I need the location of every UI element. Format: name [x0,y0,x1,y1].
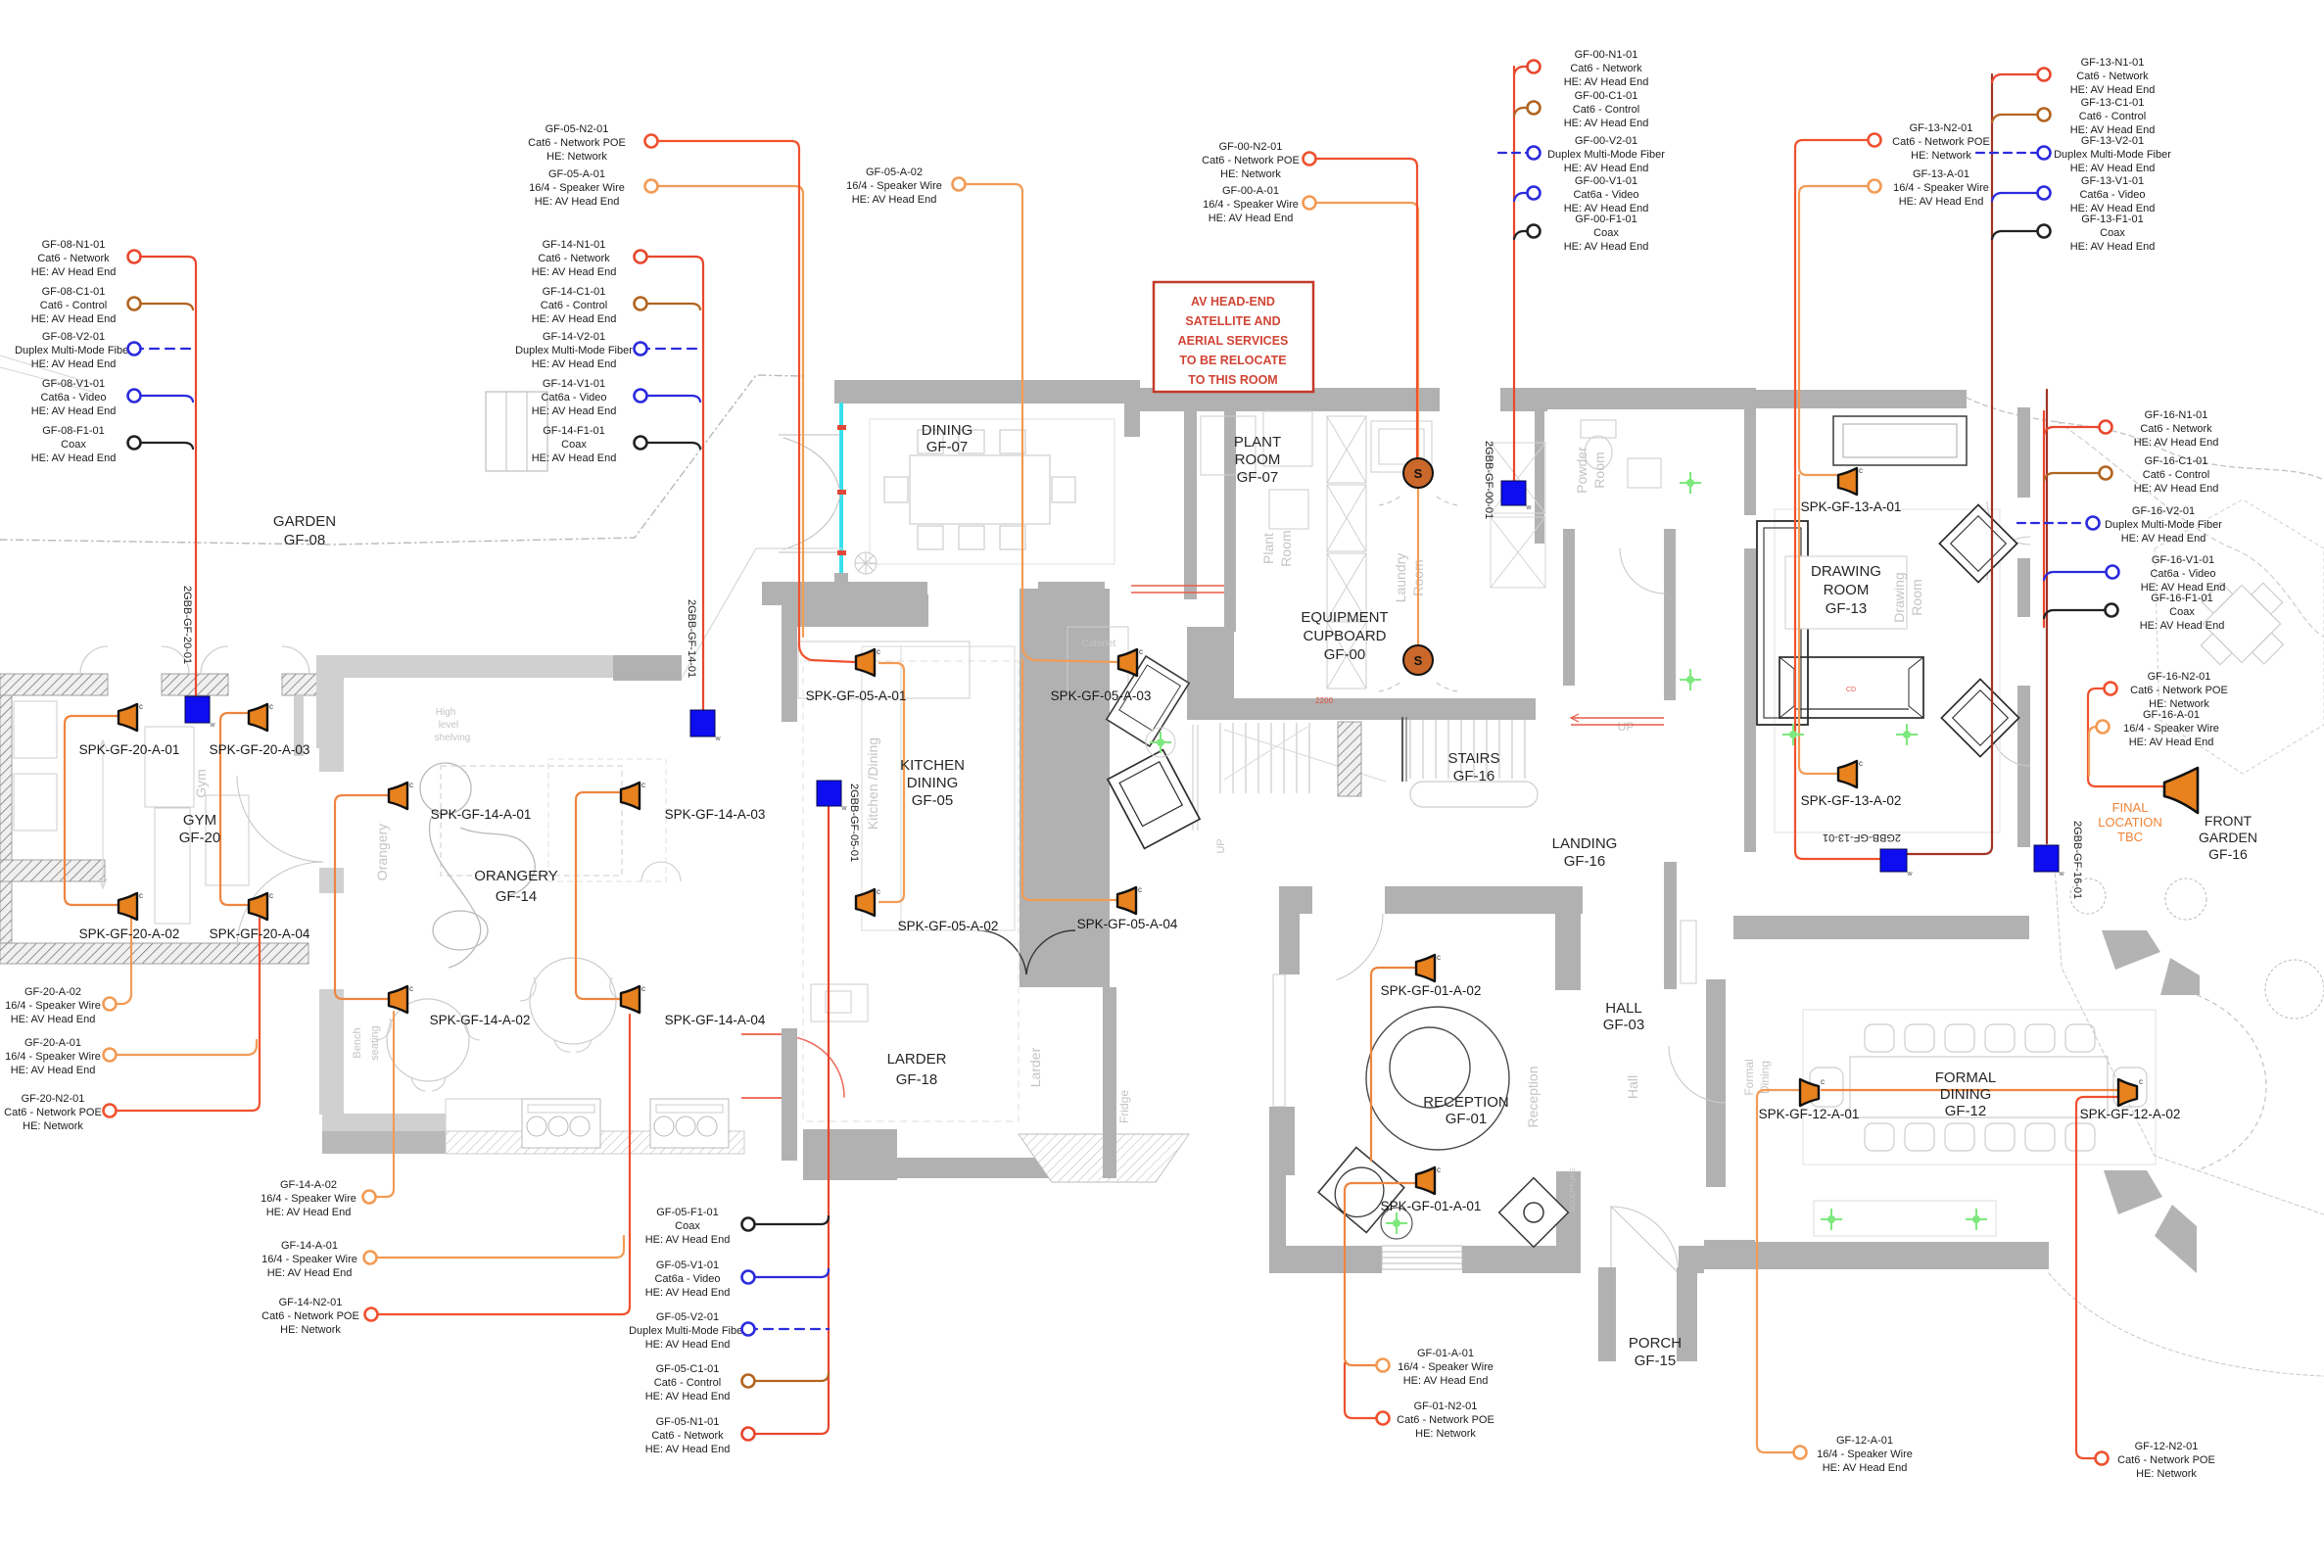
svg-text:Duplex Multi-Mode Fiber: Duplex Multi-Mode Fiber [1547,149,1665,161]
svg-text:Cabinet: Cabinet [1082,639,1116,649]
svg-text:Cat6 - Network: Cat6 - Network [37,253,110,264]
svg-text:GF-08-V2-01: GF-08-V2-01 [42,331,105,343]
svg-text:Cat6 - Control: Cat6 - Control [40,300,107,311]
svg-text:HE: AV Head End: HE: AV Head End [267,1267,353,1279]
svg-text:Cat6a - Video: Cat6a - Video [2150,568,2215,580]
svg-text:GF-16-V1-01: GF-16-V1-01 [2152,554,2214,566]
svg-text:SPK-GF-14-A-01: SPK-GF-14-A-01 [431,807,532,822]
svg-text:HE: AV Head End: HE: AV Head End [645,1287,731,1299]
svg-text:GF-20: GF-20 [179,830,221,846]
svg-text:Duplex Multi-Mode Fiber: Duplex Multi-Mode Fiber [2054,149,2171,161]
svg-text:HE: AV Head End: HE: AV Head End [2070,84,2156,96]
svg-text:HE: AV Head End: HE: AV Head End [1564,76,1649,88]
svg-text:HE: AV Head End: HE: AV Head End [31,313,117,325]
svg-text:HE: AV Head End: HE: AV Head End [2070,241,2156,253]
svg-text:GF-00-F1-01: GF-00-F1-01 [1575,214,1637,225]
svg-text:SPK-GF-14-A-03: SPK-GF-14-A-03 [665,807,766,822]
svg-text:Coax: Coax [675,1220,700,1232]
svg-text:GF-14-C1-01: GF-14-C1-01 [543,286,606,298]
svg-text:w: w [209,722,215,729]
svg-text:Cat6 - Network: Cat6 - Network [538,253,610,264]
svg-text:Cat6 - Network POE: Cat6 - Network POE [2130,685,2228,696]
svg-text:HE: AV Head End: HE: AV Head End [2134,483,2219,495]
svg-text:Cat6 - Network POE: Cat6 - Network POE [261,1310,359,1322]
svg-text:GF-00-N1-01: GF-00-N1-01 [1575,49,1638,61]
svg-text:level: level [439,720,459,731]
svg-text:Room: Room [1591,451,1607,488]
svg-text:HE: AV Head End: HE: AV Head End [31,266,117,278]
svg-text:Cat6 - Network POE: Cat6 - Network POE [528,137,626,149]
svg-text:HE: AV Head End: HE: AV Head End [645,1391,731,1402]
svg-text:SATELLITE AND: SATELLITE AND [1185,314,1280,328]
svg-text:Coax: Coax [2100,227,2125,239]
svg-text:FORMAL: FORMAL [1935,1069,1997,1086]
svg-text:HE: Network: HE: Network [1911,150,1971,162]
svg-text:GF-14-A-02: GF-14-A-02 [280,1179,337,1191]
svg-text:SPK-GF-20-A-03: SPK-GF-20-A-03 [210,742,310,757]
svg-text:PORCH: PORCH [1629,1335,1682,1352]
svg-text:FRONT: FRONT [2205,813,2253,829]
svg-text:GF-05-N1-01: GF-05-N1-01 [656,1416,720,1428]
svg-text:SPK-GF-05-A-03: SPK-GF-05-A-03 [1051,689,1152,703]
svg-text:w: w [2058,871,2064,878]
svg-text:Bench: Bench [352,1027,363,1058]
svg-text:16/4 - Speaker Wire: 16/4 - Speaker Wire [5,1000,101,1012]
svg-text:SPK-GF-13-A-01: SPK-GF-13-A-01 [1801,499,1902,514]
svg-text:GF-05-C1-01: GF-05-C1-01 [656,1363,720,1375]
svg-text:CUPBOARD: CUPBOARD [1303,628,1386,644]
svg-text:Cat6 - Network: Cat6 - Network [651,1430,724,1442]
svg-text:Cat6 - Control: Cat6 - Control [541,300,607,311]
svg-text:GF-07: GF-07 [926,439,969,455]
svg-text:c: c [139,702,143,711]
svg-text:GF-14: GF-14 [496,888,538,905]
svg-text:HE: AV Head End: HE: AV Head End [1209,213,1294,224]
svg-text:c: c [409,984,413,993]
svg-text:DINING: DINING [1940,1086,1992,1103]
svg-text:GF-13-C1-01: GF-13-C1-01 [2081,97,2145,109]
svg-text:GF-00-C1-01: GF-00-C1-01 [1575,90,1638,102]
svg-text:GF-00-V2-01: GF-00-V2-01 [1575,135,1637,147]
svg-text:GF-05-V1-01: GF-05-V1-01 [656,1259,719,1271]
svg-text:Cat6a - Video: Cat6a - Video [654,1273,720,1285]
svg-text:c: c [1821,1077,1825,1086]
svg-text:SPK-GF-12-A-02: SPK-GF-12-A-02 [2080,1107,2181,1121]
svg-text:HE: AV Head End: HE: AV Head End [2070,163,2156,174]
svg-text:RECEPTION: RECEPTION [1423,1094,1509,1111]
svg-text:GF-01-N2-01: GF-01-N2-01 [1414,1401,1478,1412]
svg-text:GF-13-V1-01: GF-13-V1-01 [2081,175,2144,187]
svg-text:c: c [409,781,413,789]
svg-text:Laundry: Laundry [1393,553,1408,603]
svg-text:c: c [1859,759,1863,768]
svg-text:DINING: DINING [907,775,959,791]
svg-text:HE: AV Head End: HE: AV Head End [1564,241,1649,253]
svg-text:16/4 - Speaker Wire: 16/4 - Speaker Wire [1893,182,1989,194]
svg-text:16/4 - Speaker Wire: 16/4 - Speaker Wire [261,1193,356,1205]
svg-text:GF-14-V1-01: GF-14-V1-01 [543,378,605,390]
svg-text:GF-05-F1-01: GF-05-F1-01 [656,1207,719,1218]
svg-text:Room: Room [1909,579,1924,615]
svg-text:2GBB-GF-05-01: 2GBB-GF-05-01 [848,784,860,862]
svg-text:GF-16-N2-01: GF-16-N2-01 [2148,671,2211,683]
svg-text:GF-00: GF-00 [1324,646,1366,663]
svg-text:Cat6 - Network: Cat6 - Network [2076,71,2149,82]
svg-text:GF-13-F1-01: GF-13-F1-01 [2081,214,2144,225]
svg-text:SCULPTURE: SCULPTURE [1568,1167,1577,1212]
svg-text:GF-08-C1-01: GF-08-C1-01 [42,286,106,298]
svg-text:Coax: Coax [561,439,587,451]
svg-text:GF-16-F1-01: GF-16-F1-01 [2151,593,2213,604]
svg-text:S: S [1414,466,1423,481]
svg-text:HE: Network: HE: Network [1415,1428,1476,1440]
svg-text:GF-20-N2-01: GF-20-N2-01 [22,1093,85,1105]
svg-text:Larder: Larder [1027,1047,1043,1087]
svg-text:GF-14-F1-01: GF-14-F1-01 [543,425,605,437]
svg-text:Duplex Multi-Mode Fiber: Duplex Multi-Mode Fiber [515,345,633,356]
svg-text:c: c [269,891,273,900]
svg-text:HE: AV Head End: HE: AV Head End [532,405,617,417]
svg-text:KITCHEN: KITCHEN [900,757,965,774]
svg-text:TBC: TBC [2117,830,2143,844]
svg-text:GARDEN: GARDEN [273,513,336,530]
svg-text:HE: AV Head End: HE: AV Head End [532,266,617,278]
svg-text:Duplex Multi-Mode Fiber: Duplex Multi-Mode Fiber [2105,519,2222,531]
svg-text:c: c [269,702,273,711]
svg-text:GF-16: GF-16 [1453,768,1495,784]
svg-text:GF-12-N2-01: GF-12-N2-01 [2135,1441,2199,1452]
svg-text:GF-07: GF-07 [1237,469,1279,486]
svg-text:Cat6a - Video: Cat6a - Video [40,392,106,404]
svg-text:HE: AV Head End: HE: AV Head End [532,313,617,325]
svg-text:c: c [2139,1077,2143,1086]
svg-text:GF-12: GF-12 [1945,1103,1987,1119]
svg-text:HE: AV Head End: HE: AV Head End [645,1234,731,1246]
svg-text:Coax: Coax [61,439,86,451]
svg-text:HE: AV Head End: HE: AV Head End [2121,533,2206,545]
svg-text:Reception: Reception [1525,1066,1541,1127]
svg-text:HE: AV Head End: HE: AV Head End [2129,736,2214,748]
svg-text:GARDEN: GARDEN [2199,830,2257,845]
svg-text:GF-05-A-02: GF-05-A-02 [866,166,923,178]
svg-text:SPK-GF-01-A-02: SPK-GF-01-A-02 [1381,983,1482,998]
svg-text:FINAL: FINAL [2112,800,2149,815]
svg-text:Duplex Multi-Mode Fiber: Duplex Multi-Mode Fiber [15,345,132,356]
svg-text:TO THIS ROOM: TO THIS ROOM [1188,373,1277,387]
svg-text:HE: Network: HE: Network [546,151,607,163]
svg-text:GF-08-N1-01: GF-08-N1-01 [42,239,106,251]
svg-text:GF-15: GF-15 [1635,1353,1677,1369]
svg-text:GF-16-N1-01: GF-16-N1-01 [2145,409,2208,421]
svg-text:GF-00-N2-01: GF-00-N2-01 [1219,141,1283,153]
svg-text:GF-16: GF-16 [1564,853,1606,870]
svg-text:HE: AV Head End: HE: AV Head End [11,1014,96,1025]
svg-text:GF-13: GF-13 [1826,600,1868,617]
svg-text:CD: CD [1846,687,1856,693]
svg-text:Cat6 - Network POE: Cat6 - Network POE [1892,136,1990,148]
svg-text:Cat6a - Video: Cat6a - Video [1573,189,1638,201]
svg-text:EQUIPMENT: EQUIPMENT [1301,609,1388,626]
svg-text:GF-16-C1-01: GF-16-C1-01 [2145,455,2208,467]
svg-text:GF-03: GF-03 [1603,1017,1645,1033]
svg-text:HE: AV Head End: HE: AV Head End [1564,163,1649,174]
svg-text:2GBB-GF-16-01: 2GBB-GF-16-01 [2071,821,2083,899]
svg-text:HE: AV Head End: HE: AV Head End [31,358,117,370]
svg-text:HE: AV Head End: HE: AV Head End [852,194,937,206]
svg-text:HE: Network: HE: Network [280,1324,341,1336]
svg-text:seating: seating [369,1025,381,1060]
svg-text:LANDING: LANDING [1552,835,1618,852]
svg-text:GF-05-N2-01: GF-05-N2-01 [545,123,609,135]
svg-text:SPK-GF-05-A-04: SPK-GF-05-A-04 [1077,917,1178,931]
svg-text:c: c [1859,466,1863,475]
svg-text:UP: UP [1215,838,1227,853]
svg-text:c: c [877,647,880,656]
svg-text:HE: AV Head End: HE: AV Head End [1823,1462,1908,1474]
svg-text:S: S [1414,653,1423,668]
svg-text:LOCATION: LOCATION [2098,815,2162,830]
svg-text:16/4 - Speaker Wire: 16/4 - Speaker Wire [5,1051,101,1063]
svg-text:Cat6 - Control: Cat6 - Control [654,1377,721,1389]
svg-text:HE: AV Head End: HE: AV Head End [645,1339,731,1351]
svg-text:GF-01: GF-01 [1446,1111,1488,1127]
svg-text:Cat6 - Network POE: Cat6 - Network POE [1202,155,1300,166]
svg-text:Cat6 - Control: Cat6 - Control [1573,104,1639,116]
svg-text:GF-14-N1-01: GF-14-N1-01 [543,239,606,251]
svg-text:GF-16-V2-01: GF-16-V2-01 [2132,505,2195,517]
svg-text:TO BE RELOCATE: TO BE RELOCATE [1179,354,1286,367]
svg-text:DINING: DINING [922,422,973,439]
svg-text:2GBB-GF-14-01: 2GBB-GF-14-01 [686,599,697,678]
svg-text:GF-14-A-01: GF-14-A-01 [281,1240,338,1252]
svg-text:Cat6 - Network: Cat6 - Network [2140,423,2212,435]
svg-text:SPK-GF-13-A-02: SPK-GF-13-A-02 [1801,793,1902,808]
svg-text:GF-05-V2-01: GF-05-V2-01 [656,1311,719,1323]
svg-text:STAIRS: STAIRS [1447,750,1499,767]
svg-text:SPK-GF-05-A-01: SPK-GF-05-A-01 [806,689,907,703]
svg-text:c: c [1437,953,1441,962]
svg-text:HE: AV Head End: HE: AV Head End [1564,118,1649,129]
svg-text:AERIAL SERVICES: AERIAL SERVICES [1178,334,1289,348]
svg-text:HE: AV Head End: HE: AV Head End [535,196,620,208]
svg-text:HE: AV Head End: HE: AV Head End [532,358,617,370]
svg-text:Room: Room [1278,530,1294,566]
svg-text:HE: AV Head End: HE: AV Head End [266,1207,352,1218]
svg-text:Cat6 - Control: Cat6 - Control [2143,469,2209,481]
svg-text:HE: AV Head End: HE: AV Head End [31,405,117,417]
svg-text:GF-16: GF-16 [2208,846,2248,862]
svg-text:Duplex Multi-Mode Fiber: Duplex Multi-Mode Fiber [629,1325,746,1337]
svg-text:LARDER: LARDER [887,1051,947,1068]
svg-text:HE: AV Head End: HE: AV Head End [2140,620,2225,632]
svg-text:High: High [436,707,456,718]
svg-text:w: w [840,805,847,812]
svg-text:Coax: Coax [2169,606,2195,618]
svg-text:GF-12-A-01: GF-12-A-01 [1836,1435,1893,1447]
svg-text:2GBB-GF-00-01: 2GBB-GF-00-01 [1483,441,1494,519]
svg-text:c: c [641,781,645,789]
svg-text:c: c [1139,647,1143,656]
svg-text:Coax: Coax [1593,227,1619,239]
svg-text:Gym: Gym [193,769,209,798]
svg-text:HE: AV Head End: HE: AV Head End [31,452,117,464]
svg-text:PLANT: PLANT [1234,434,1281,451]
svg-text:w: w [1525,504,1532,511]
svg-text:16/4 - Speaker Wire: 16/4 - Speaker Wire [2123,723,2219,735]
svg-text:GF-13-N2-01: GF-13-N2-01 [1910,122,1973,134]
svg-text:GF-16-A-01: GF-16-A-01 [2143,709,2200,721]
svg-text:Formal: Formal [1742,1059,1756,1095]
svg-text:shelving: shelving [435,733,471,743]
svg-text:Orangery: Orangery [374,824,390,880]
svg-text:UP: UP [1618,720,1635,734]
svg-text:GF-08-F1-01: GF-08-F1-01 [42,425,105,437]
svg-text:HE: Network: HE: Network [23,1120,83,1132]
svg-text:HALL: HALL [1605,1000,1642,1017]
svg-text:SPK-GF-05-A-02: SPK-GF-05-A-02 [898,919,999,933]
svg-text:GF-13-N1-01: GF-13-N1-01 [2081,57,2145,69]
svg-text:HE: AV Head End: HE: AV Head End [11,1065,96,1076]
svg-text:Drawing: Drawing [1891,572,1907,622]
svg-text:Kitchen /Dining: Kitchen /Dining [865,737,880,830]
svg-text:GF-20-A-01: GF-20-A-01 [24,1037,81,1049]
svg-text:SPK-GF-01-A-01: SPK-GF-01-A-01 [1381,1199,1482,1213]
svg-text:GF-13-V2-01: GF-13-V2-01 [2081,135,2144,147]
svg-text:DRAWING: DRAWING [1811,563,1881,580]
svg-text:GF-13-A-01: GF-13-A-01 [1913,168,1969,180]
svg-text:Cat6 - Network POE: Cat6 - Network POE [2117,1454,2215,1466]
svg-text:2200: 2200 [1315,696,1333,705]
svg-text:HE: Network: HE: Network [1220,168,1281,180]
svg-text:SPK-GF-20-A-02: SPK-GF-20-A-02 [79,927,180,941]
svg-text:16/4 - Speaker Wire: 16/4 - Speaker Wire [261,1254,357,1265]
svg-text:c: c [1138,885,1142,894]
svg-text:HE: AV Head End: HE: AV Head End [2134,437,2219,449]
svg-text:16/4 - Speaker Wire: 16/4 - Speaker Wire [529,182,625,194]
svg-text:GF-14-N2-01: GF-14-N2-01 [279,1297,343,1308]
svg-text:GF-08-V1-01: GF-08-V1-01 [42,378,105,390]
svg-text:Fridge: Fridge [1117,1090,1131,1123]
svg-text:Cat6 - Network POE: Cat6 - Network POE [1397,1414,1494,1426]
svg-text:w: w [1906,871,1913,878]
svg-text:Cat6 - Network: Cat6 - Network [1570,63,1642,74]
svg-text:2GBB-GF-13-01: 2GBB-GF-13-01 [1823,832,1901,843]
svg-text:16/4 - Speaker Wire: 16/4 - Speaker Wire [846,180,942,192]
svg-text:HE: AV Head End: HE: AV Head End [1899,196,1984,208]
svg-text:c: c [139,891,143,900]
svg-text:GF-18: GF-18 [896,1071,938,1088]
svg-text:16/4 - Speaker Wire: 16/4 - Speaker Wire [1817,1449,1913,1460]
svg-text:AV HEAD-END: AV HEAD-END [1191,295,1275,309]
svg-text:c: c [877,887,880,896]
svg-text:SPK-GF-20-A-01: SPK-GF-20-A-01 [79,742,180,757]
svg-text:HE: AV Head End: HE: AV Head End [532,452,617,464]
svg-text:GYM: GYM [183,812,216,829]
svg-text:Plant: Plant [1260,533,1276,564]
svg-text:GF-00-A-01: GF-00-A-01 [1222,185,1279,197]
svg-text:HE: Network: HE: Network [2136,1468,2197,1480]
svg-text:ROOM: ROOM [1235,451,1281,468]
svg-text:16/4 - Speaker Wire: 16/4 - Speaker Wire [1203,199,1299,211]
svg-text:GF-20-A-02: GF-20-A-02 [24,986,81,998]
svg-text:GF-05: GF-05 [912,792,954,809]
svg-text:w: w [714,736,721,742]
svg-text:Hall: Hall [1625,1075,1640,1099]
svg-text:2GBB-GF-20-01: 2GBB-GF-20-01 [181,586,193,664]
svg-text:SPK-GF-14-A-02: SPK-GF-14-A-02 [430,1013,531,1027]
svg-text:ORANGERY: ORANGERY [474,868,558,884]
svg-text:c: c [1437,1165,1441,1174]
svg-text:GF-01-A-01: GF-01-A-01 [1417,1348,1474,1359]
svg-text:16/4 - Speaker Wire: 16/4 - Speaker Wire [1398,1361,1494,1373]
svg-text:Cat6 - Control: Cat6 - Control [2079,111,2146,122]
svg-text:GF-08: GF-08 [284,532,326,548]
svg-text:SPK-GF-14-A-04: SPK-GF-14-A-04 [665,1013,766,1027]
svg-text:HE: AV Head End: HE: AV Head End [645,1444,731,1455]
svg-text:Powder: Powder [1574,447,1589,494]
svg-text:Cat6 - Network POE: Cat6 - Network POE [4,1107,102,1118]
svg-text:GF-05-A-01: GF-05-A-01 [548,168,605,180]
svg-text:GF-14-V2-01: GF-14-V2-01 [543,331,605,343]
svg-text:Cat6a - Video: Cat6a - Video [2079,189,2145,201]
svg-text:Cat6a - Video: Cat6a - Video [541,392,606,404]
svg-text:ROOM: ROOM [1824,582,1870,598]
svg-text:c: c [641,984,645,993]
svg-text:GF-00-V1-01: GF-00-V1-01 [1575,175,1637,187]
svg-text:SPK-GF-20-A-04: SPK-GF-20-A-04 [210,927,310,941]
svg-text:HE: AV Head End: HE: AV Head End [1403,1375,1489,1387]
svg-text:SPK-GF-12-A-01: SPK-GF-12-A-01 [1759,1107,1860,1121]
